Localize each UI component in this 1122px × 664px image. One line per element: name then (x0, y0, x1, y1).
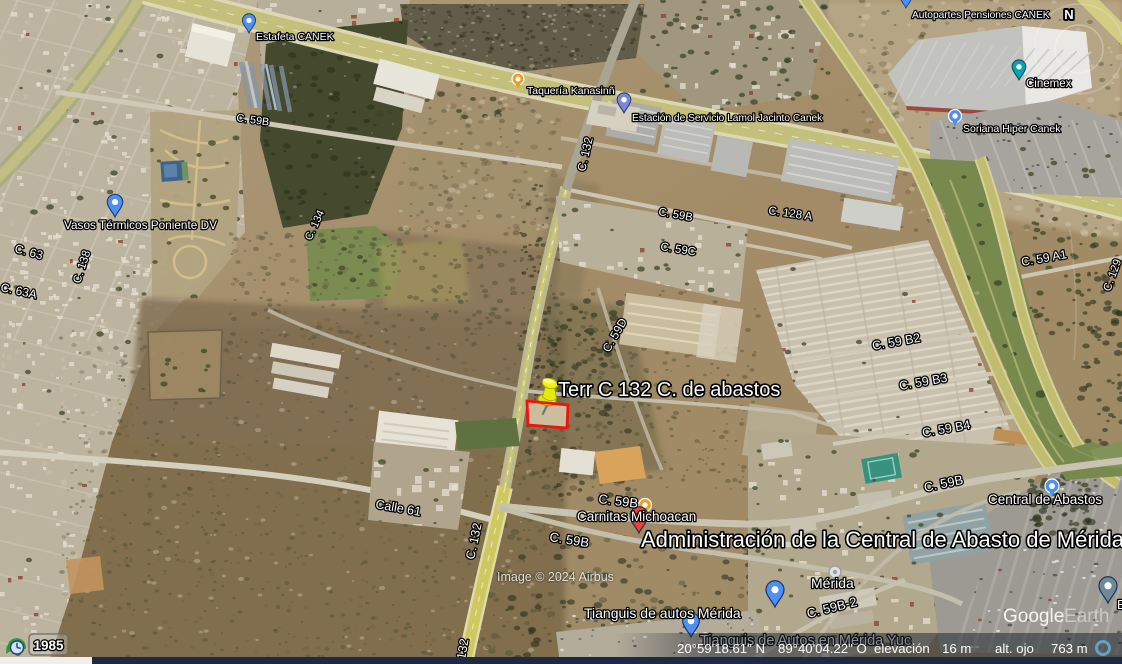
svg-text:Estafeta CANEK: Estafeta CANEK (256, 31, 334, 43)
svg-text:alt. ojo: alt. ojo (995, 641, 1034, 656)
svg-text:16 m: 16 m (942, 641, 971, 656)
svg-text:Tianguis de autos Mérida: Tianguis de autos Mérida (584, 605, 741, 621)
svg-text:Taquería Kanasinñ: Taquería Kanasinñ (527, 85, 615, 97)
svg-text:89°40'04.22" O: 89°40'04.22" O (778, 641, 867, 656)
svg-text:Image © 2024 Airbus: Image © 2024 Airbus (497, 570, 614, 584)
svg-text:E: E (1117, 597, 1122, 612)
svg-text:Mérida: Mérida (811, 575, 854, 591)
svg-text:763 m: 763 m (1051, 641, 1088, 656)
svg-text:Soriana Hiper Canek: Soriana Hiper Canek (963, 123, 1061, 135)
svg-text:Cinemex: Cinemex (1026, 78, 1072, 90)
svg-text:Terr C 132 C. de abastos: Terr C 132 C. de abastos (558, 379, 780, 401)
svg-text:N: N (1064, 7, 1073, 22)
svg-text:elevación: elevación (874, 641, 930, 656)
svg-text:20°59'18.61" N: 20°59'18.61" N (677, 641, 765, 656)
svg-text:Administración de la Central d: Administración de la Central de Abasto d… (641, 527, 1122, 552)
svg-text:Vasos Térmicos Poniente DV: Vasos Térmicos Poniente DV (64, 218, 217, 232)
svg-text:Google: Google (1003, 606, 1064, 627)
svg-text:Carnitas Michoacan: Carnitas Michoacan (577, 509, 696, 524)
svg-text:Earth: Earth (1064, 606, 1109, 627)
svg-text:Estación de Servicio Lamol Jac: Estación de Servicio Lamol Jacinto Canek (632, 113, 823, 124)
svg-text:Central de Abastos: Central de Abastos (988, 492, 1102, 507)
svg-text:Autopartes Pensiones CANEK: Autopartes Pensiones CANEK (912, 10, 1050, 21)
svg-text:1985: 1985 (33, 638, 64, 653)
